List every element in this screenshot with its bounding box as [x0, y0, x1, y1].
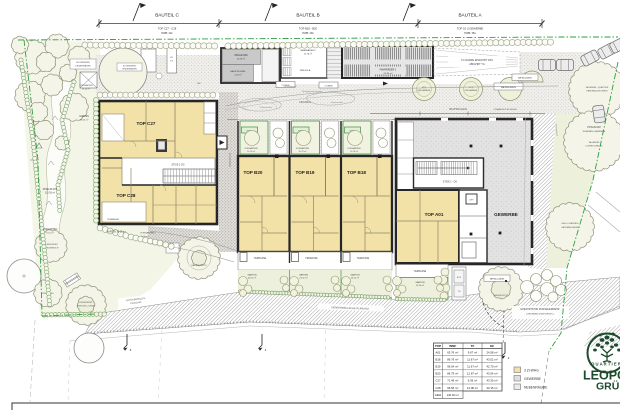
- svg-text:KINDERWAGEN: KINDERWAGEN: [122, 68, 137, 71]
- svg-text:BAUTEIL C: BAUTEIL C: [155, 13, 179, 18]
- svg-text:11.67 m²: 11.67 m²: [467, 357, 478, 361]
- svg-text:GARTEN: GARTEN: [247, 274, 256, 277]
- svg-text:6.39 m²: 6.39 m²: [468, 379, 478, 383]
- svg-text:10.76 m²: 10.76 m²: [247, 150, 255, 153]
- svg-text:TERRASSE: TERRASSE: [357, 257, 370, 260]
- svg-text:GEH- & RADWEG: GEH- & RADWEG: [561, 222, 578, 225]
- svg-text:Sickermulde: Sickermulde: [331, 101, 344, 104]
- svg-text:10.76 m²: 10.76 m²: [350, 150, 358, 153]
- svg-text:PARKRAUM WOHNEN: PARKRAUM WOHNEN: [587, 90, 608, 93]
- svg-text:GF: GF: [490, 344, 494, 348]
- svg-text:GEWERBE: GEWERBE: [494, 212, 518, 217]
- svg-text:5.08 m²: 5.08 m²: [234, 74, 241, 77]
- svg-text:21.78 m²: 21.78 m²: [304, 53, 313, 56]
- svg-text:KINDERSPIEL: KINDERSPIEL: [79, 302, 93, 304]
- svg-text:16.20 m²: 16.20 m²: [82, 88, 90, 91]
- svg-text:PKW-RAUM: PKW-RAUM: [587, 126, 600, 129]
- svg-text:TOP B18: TOP B18: [347, 170, 366, 175]
- svg-text:GARTEN: GARTEN: [299, 274, 308, 277]
- svg-text:HAUPTZUGANG: HAUPTZUGANG: [449, 108, 467, 111]
- svg-text:43.15 m²: 43.15 m²: [486, 386, 497, 390]
- svg-text:ZUGANGSTOR GEH-B: ZUGANGSTOR GEH-B: [494, 108, 517, 111]
- svg-text:86.79 m²: 86.79 m²: [447, 372, 458, 376]
- svg-text:C27: C27: [435, 379, 441, 383]
- svg-text:TOP C28: TOP C28: [117, 193, 136, 198]
- svg-text:SPIELPLATZ: SPIELPLATZ: [43, 188, 58, 191]
- svg-text:TOP B18 - B20: TOP B18 - B20: [299, 27, 318, 31]
- svg-text:Q U A R T I E R: Q U A R T I E R: [591, 362, 620, 367]
- svg-text:12.08 m²: 12.08 m²: [467, 386, 478, 390]
- svg-text:TOP C27: TOP C27: [137, 121, 156, 126]
- svg-text:GARTEN 30.16 m²: GARTEN 30.16 m²: [106, 231, 125, 234]
- svg-text:TOP A01: TOP A01: [425, 212, 444, 217]
- svg-text:3 ZI-WHG: 3 ZI-WHG: [524, 369, 539, 373]
- svg-text:KATZARA-GASSE: KATZARA-GASSE: [561, 226, 579, 229]
- svg-text:PERGOLA: PERGOLA: [300, 69, 311, 72]
- svg-text:TERRASSE: TERRASSE: [414, 270, 427, 273]
- svg-text:BAUTEIL B: BAUTEIL B: [296, 13, 319, 18]
- svg-text:110.56 m²: 110.56 m²: [45, 192, 55, 195]
- svg-text:23.02 m²: 23.02 m²: [299, 277, 308, 280]
- svg-text:63.76 m²: 63.76 m²: [447, 350, 458, 354]
- svg-text:TERRASSE: TERRASSE: [107, 218, 119, 221]
- svg-text:VORGARTEN: VORGARTEN: [296, 147, 310, 150]
- svg-text:66.56 m²: 66.56 m²: [447, 386, 458, 390]
- svg-text:43.02 m²: 43.02 m²: [486, 357, 497, 361]
- svg-text:86.79 m²: 86.79 m²: [447, 357, 458, 361]
- svg-text:Gehsteigkante bestand: Gehsteigkante bestand: [302, 90, 323, 93]
- svg-text:METALLZAUN: METALLZAUN: [518, 77, 532, 80]
- svg-text:VORGARTEN: VORGARTEN: [43, 228, 58, 231]
- svg-text:KLEINKINDER: KLEINKINDER: [44, 244, 58, 246]
- svg-text:5.06 m²: 5.06 m²: [141, 235, 148, 238]
- svg-text:HWB: 20c: HWB: 20c: [161, 32, 173, 35]
- svg-text:C28: C28: [435, 386, 441, 390]
- svg-text:BAUMSCHUTZ: BAUMSCHUTZ: [494, 294, 509, 297]
- svg-text:B20: B20: [436, 372, 441, 376]
- svg-text:VORGARTEN: VORGARTEN: [244, 147, 258, 150]
- svg-text:MÜLLRAUM: MÜLLRAUM: [235, 54, 248, 57]
- svg-text:11.67 m²: 11.67 m²: [467, 365, 478, 369]
- svg-text:GRÜND: GRÜND: [596, 380, 620, 393]
- svg-text:TF: TF: [471, 344, 475, 348]
- svg-text:Sickermulde: Sickermulde: [260, 106, 273, 109]
- svg-text:SO KINDERW.: SO KINDERW.: [123, 65, 137, 67]
- svg-text:TOP C27 - C28: TOP C27 - C28: [158, 27, 177, 31]
- svg-text:24.58 m²: 24.58 m²: [416, 284, 425, 287]
- svg-text:A01: A01: [436, 350, 441, 354]
- svg-text:FAHRRÄDER 2: FAHRRÄDER 2: [300, 49, 316, 52]
- svg-text:GARTEN: GARTEN: [79, 115, 89, 118]
- svg-text:ERDHÜGEL+TUNNEL: ERDHÜGEL+TUNNEL: [77, 305, 95, 308]
- svg-text:BAUMSCHUTZ: BAUMSCHUTZ: [191, 264, 207, 267]
- svg-text:NEBENRÄUME: NEBENRÄUME: [524, 386, 548, 390]
- svg-text:EINFAHRTSTOR PKW/FEUERWEHR: EINFAHRTSTOR PKW/FEUERWEHR: [521, 308, 560, 311]
- svg-text:42.70 m²: 42.70 m²: [486, 365, 497, 369]
- svg-text:140.02 m²: 140.02 m²: [447, 393, 459, 397]
- svg-text:GEW: GEW: [435, 393, 442, 397]
- svg-text:9.22 m²: 9.22 m²: [46, 232, 54, 235]
- svg-text:FAHRRÄDER 1: FAHRRÄDER 1: [380, 69, 397, 72]
- svg-text:TERRASSE: TERRASSE: [254, 257, 267, 260]
- svg-text:VORGARTEN: VORGARTEN: [347, 147, 361, 150]
- svg-text:2 OBEN: 2 OBEN: [324, 86, 332, 88]
- svg-text:ERDGARAGE: ERDGARAGE: [465, 89, 478, 92]
- svg-text:GARTEN: GARTEN: [415, 281, 424, 284]
- svg-text:43.30 m²: 43.30 m²: [486, 379, 497, 383]
- svg-text:B19: B19: [436, 365, 441, 369]
- svg-text:WNF: WNF: [449, 344, 456, 348]
- svg-text:TOP: TOP: [435, 344, 441, 348]
- svg-text:23.02 m²: 23.02 m²: [351, 277, 360, 280]
- svg-text:VACANZAS - QUARTIER: VACANZAS - QUARTIER: [586, 86, 609, 89]
- svg-text:10.76 m²: 10.76 m²: [299, 150, 307, 153]
- svg-text:Gehsteigkante: Gehsteigkante: [284, 85, 298, 88]
- svg-text:HWB: 23b: HWB: 23b: [302, 32, 314, 35]
- svg-text:VORGARTEN: VORGARTEN: [79, 84, 93, 87]
- svg-text:23.02 m²: 23.02 m²: [248, 277, 257, 280]
- svg-text:BAUTEIL A: BAUTEIL A: [458, 13, 482, 18]
- svg-text:24.58 m²: 24.58 m²: [486, 350, 497, 354]
- svg-text:ERDGARAGE: ERDGARAGE: [418, 89, 431, 92]
- svg-text:STIGE 2 OG: STIGE 2 OG: [171, 165, 184, 167]
- svg-text:43.54 m²: 43.54 m²: [486, 372, 497, 376]
- svg-text:12.87 m²: 12.87 m²: [467, 372, 478, 376]
- svg-text:TOP 01 U.GEWERBE: TOP 01 U.GEWERBE: [457, 27, 484, 31]
- svg-text:WOHNEN+GEWERBE: WOHNEN+GEWERBE: [583, 131, 606, 133]
- svg-text:STIGE 1 - OG: STIGE 1 - OG: [443, 182, 458, 184]
- svg-text:ABFAHRT TG: ABFAHRT TG: [469, 63, 485, 66]
- svg-text:TOP B19: TOP B19: [296, 170, 315, 175]
- svg-text:B18: B18: [436, 357, 441, 361]
- svg-text:BOX: BOX: [457, 277, 462, 279]
- svg-text:TG: TG: [170, 61, 173, 63]
- svg-text:VORGARTEN 5: VORGARTEN 5: [140, 232, 156, 235]
- svg-text:TERRASSE: TERRASSE: [305, 257, 318, 260]
- svg-text:TOP B20: TOP B20: [244, 170, 263, 175]
- svg-text:VACANZAS: VACANZAS: [589, 141, 600, 144]
- svg-text:(GRÜNBRÜCKENGÜRTEL): (GRÜNBRÜCKENGÜRTEL): [526, 313, 554, 316]
- svg-text:EHRENWEG: EHRENWEG: [228, 153, 231, 167]
- svg-text:62.90 m²: 62.90 m²: [384, 72, 393, 75]
- svg-text:9.67 m²: 9.67 m²: [468, 350, 478, 354]
- svg-text:GARTEN: GARTEN: [350, 274, 359, 277]
- svg-text:25.08 m²: 25.08 m²: [237, 58, 246, 61]
- svg-text:HAUSTECHNIK: HAUSTECHNIK: [231, 70, 247, 73]
- svg-text:96.54 m²: 96.54 m²: [447, 365, 458, 369]
- svg-text:HWB: 35a: HWB: 35a: [464, 32, 476, 35]
- svg-text:GEWERBE: GEWERBE: [524, 377, 542, 381]
- svg-text:71.49 m²: 71.49 m²: [447, 379, 458, 383]
- svg-text:TG RAMPE EINFAHRT 18%: TG RAMPE EINFAHRT 18%: [461, 59, 493, 62]
- svg-text:33.04 m²: 33.04 m²: [80, 119, 89, 122]
- svg-text:METALLZAUN: METALLZAUN: [490, 278, 505, 281]
- svg-text:SO KINDERW.: SO KINDERW.: [76, 62, 90, 64]
- svg-text:KINDERWAGEN: KINDERWAGEN: [75, 65, 91, 68]
- svg-text:TG: TG: [458, 291, 461, 293]
